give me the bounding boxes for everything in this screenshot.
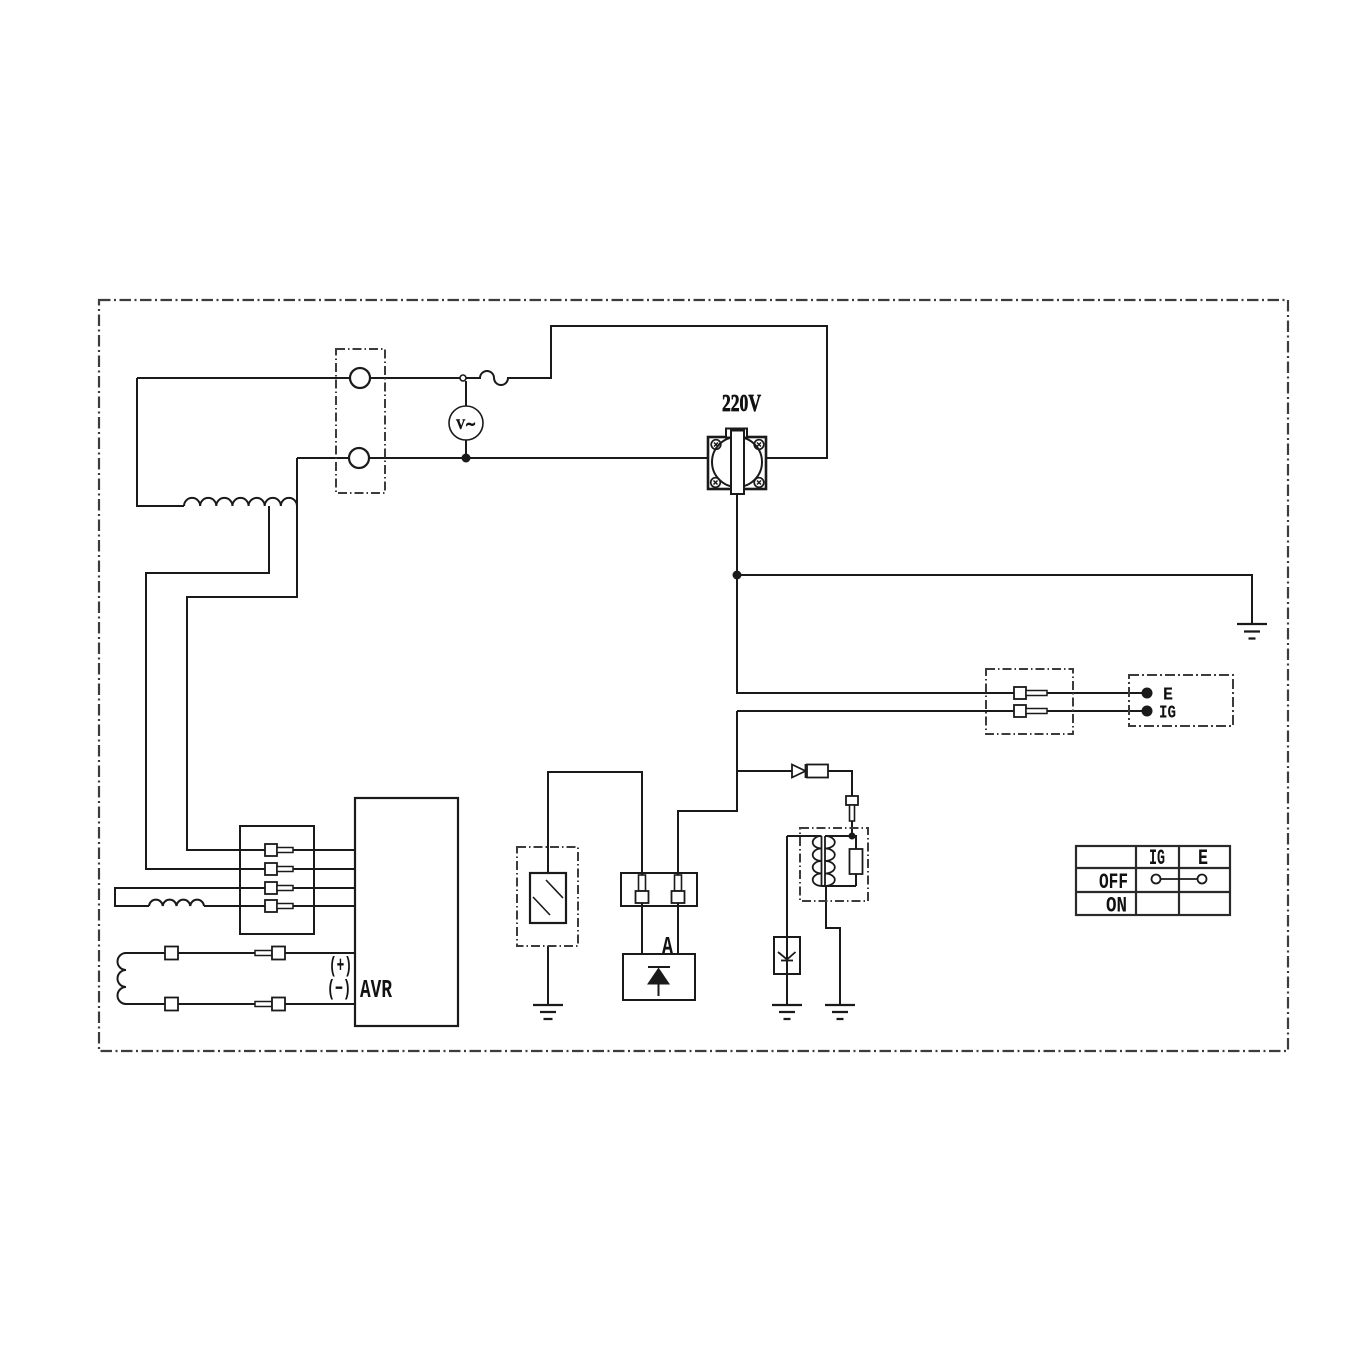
svg-text:A: A [662,933,673,962]
svg-text:OFF: OFF [1099,870,1128,895]
svg-text:(−): (−) [327,977,351,1002]
svg-text:AVR: AVR [360,975,392,1005]
svg-text:V∼: V∼ [456,417,476,433]
svg-text:220V: 220V [722,391,761,417]
svg-text:IG: IG [1149,846,1165,871]
svg-text:IG: IG [1159,704,1176,724]
svg-text:ON: ON [1106,894,1127,919]
svg-text:E: E [1198,846,1208,871]
svg-text:(+): (+) [329,954,352,979]
svg-text:E: E [1163,686,1173,706]
